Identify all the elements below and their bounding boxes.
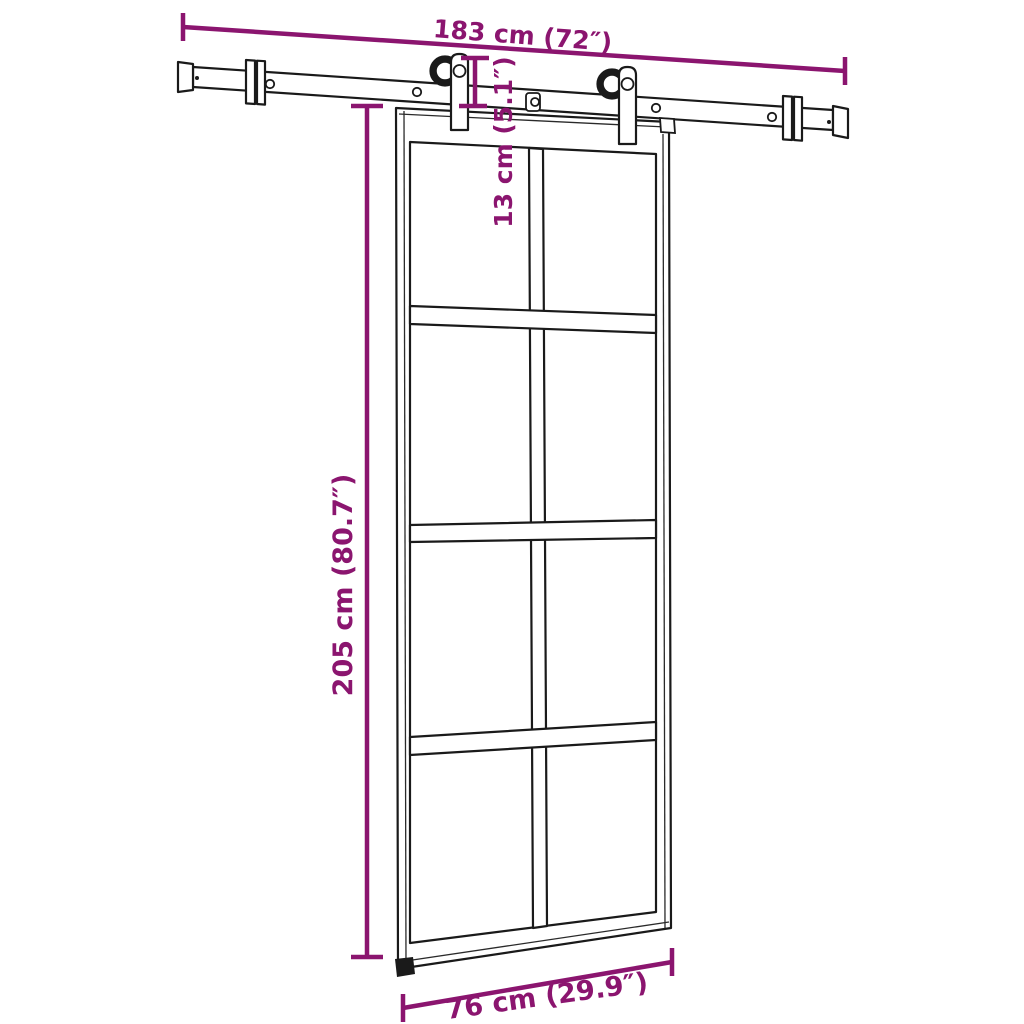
door-height-label: 205 cm (80.7″) [328,474,359,697]
rail-screw-hole [768,113,776,121]
door-horizontal-divider-2 [410,520,656,542]
door-width-label: 76 cm (29.9″) [444,967,650,1024]
rail-end-cap-right [833,106,848,138]
end-cap-pin [195,76,199,80]
rail-end-cap-left [178,62,193,92]
dimension-door-height: 205 cm (80.7″) [328,106,383,957]
glass-door [395,108,675,977]
dimension-diagram: 183 cm (72″) 13 cm (5.1″) 205 cm (80.7″)… [0,0,1024,1024]
rail-screw-hole [652,104,660,112]
floor-guide [395,957,415,977]
hanger-drop-label: 13 cm (5.1″) [489,56,518,227]
rail-stopper-left [246,60,265,105]
left-strap-bolt-hole [454,65,466,77]
end-cap-pin [827,120,831,124]
wall-spacer-bracket [526,93,540,111]
right-strap-bolt-hole [622,78,634,90]
rail-screw-hole [413,88,421,96]
rail-stopper-right [783,96,802,141]
rail-screw-hole [266,80,274,88]
door-top-right-corner-cap [660,118,675,133]
